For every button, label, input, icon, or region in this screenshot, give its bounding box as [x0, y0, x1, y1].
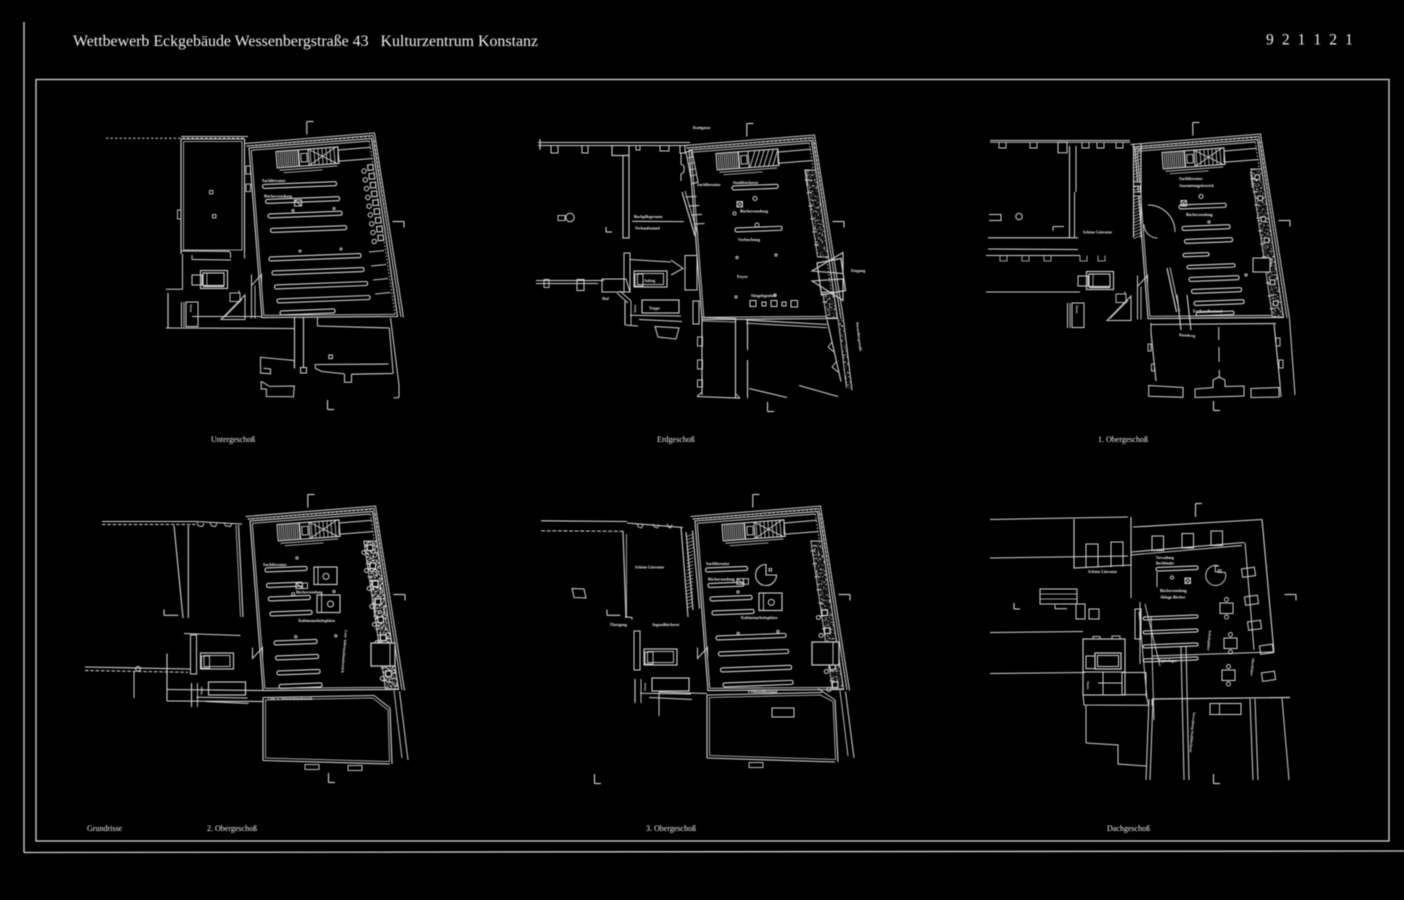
svg-text:Verwaltung: Verwaltung: [1156, 556, 1174, 560]
svg-text:Grundrisse: Grundrisse: [87, 824, 123, 833]
svg-text:Büchersendung: Büchersendung: [1186, 212, 1213, 217]
svg-text:Büchersendung: Büchersendung: [708, 577, 735, 582]
svg-text:2. Obergeschoß: 2. Obergeschoß: [207, 824, 257, 833]
svg-text:Turm: Turm: [189, 304, 193, 312]
svg-text:Sachliteratur: Sachliteratur: [1179, 176, 1203, 181]
svg-text:Turm: Turm: [1086, 681, 1090, 689]
svg-text:Büchersendung: Büchersendung: [1160, 588, 1187, 593]
svg-text:Turm: Turm: [643, 683, 647, 691]
svg-text:Büchersendung: Büchersendung: [296, 590, 323, 595]
svg-text:Schöne Literatur: Schöne Literatur: [635, 565, 664, 570]
svg-text:Turm: Turm: [1075, 305, 1079, 313]
svg-text:Ablage Bücher: Ablage Bücher: [1160, 595, 1186, 600]
svg-text:Hof: Hof: [602, 296, 609, 301]
svg-text:1. Obergeschoß: 1. Obergeschoß: [1098, 435, 1148, 444]
svg-text:Eingang: Eingang: [851, 268, 865, 273]
svg-text:Büchersendung: Büchersendung: [740, 209, 769, 214]
svg-text:Erdgeschoß: Erdgeschoß: [657, 435, 695, 444]
svg-text:Schöne Literatur: Schöne Literatur: [1083, 230, 1112, 235]
svg-text:Buchbinder: Buchbinder: [1156, 562, 1175, 566]
svg-text:Papierlager: Papierlager: [1158, 659, 1177, 663]
svg-text:3. Obergeschoß: 3. Obergeschoß: [646, 824, 696, 833]
svg-text:Büchersendung: Büchersendung: [264, 194, 293, 199]
svg-text:Sitzgelegenheit: Sitzgelegenheit: [751, 293, 777, 298]
svg-text:Foyer: Foyer: [737, 274, 748, 279]
svg-text:Aufzug: Aufzug: [644, 279, 655, 283]
svg-text:Jugendbücherei: Jugendbücherei: [652, 622, 680, 627]
svg-text:Ausstattungsbereich: Ausstattungsbereich: [1179, 183, 1215, 188]
svg-text:Kattgasse: Kattgasse: [693, 125, 711, 130]
svg-text:Dachgeschoß: Dachgeschoß: [1107, 824, 1150, 833]
svg-text:Untergeschoß: Untergeschoß: [211, 435, 255, 444]
svg-text:Buchpflegeraum: Buchpflegeraum: [634, 214, 663, 219]
svg-text:Schöne Literatur: Schöne Literatur: [1088, 569, 1117, 574]
svg-text:9 2 1 1 2 1: 9 2 1 1 2 1: [1266, 32, 1355, 49]
svg-text:Stadtbücherei: Stadtbücherei: [733, 180, 759, 185]
svg-text:Wettbewerb Eckgebäude Wessenbe: Wettbewerb Eckgebäude Wessenbergstraße 4…: [73, 33, 538, 50]
svg-text:Sachliteratur: Sachliteratur: [263, 562, 287, 567]
svg-text:Freihandbestand: Freihandbestand: [1193, 309, 1223, 314]
svg-text:Turm: Turm: [633, 305, 637, 313]
svg-text:Turm: Turm: [200, 687, 204, 695]
svg-text:Kabinenarbeitsplätze: Kabinenarbeitsplätze: [741, 615, 778, 620]
svg-text:Verbuchung: Verbuchung: [738, 237, 761, 242]
svg-text:Kabinenarbeitsplätze: Kabinenarbeitsplätze: [299, 618, 336, 623]
svg-text:Übergang: Übergang: [610, 622, 627, 627]
svg-text:Sachliteratur: Sachliteratur: [697, 182, 721, 187]
svg-text:Sachliteratur: Sachliteratur: [706, 561, 730, 566]
svg-text:Sachliteratur: Sachliteratur: [262, 178, 286, 183]
svg-text:Verkaufsstand: Verkaufsstand: [635, 226, 661, 231]
svg-text:Treppe: Treppe: [649, 307, 660, 311]
